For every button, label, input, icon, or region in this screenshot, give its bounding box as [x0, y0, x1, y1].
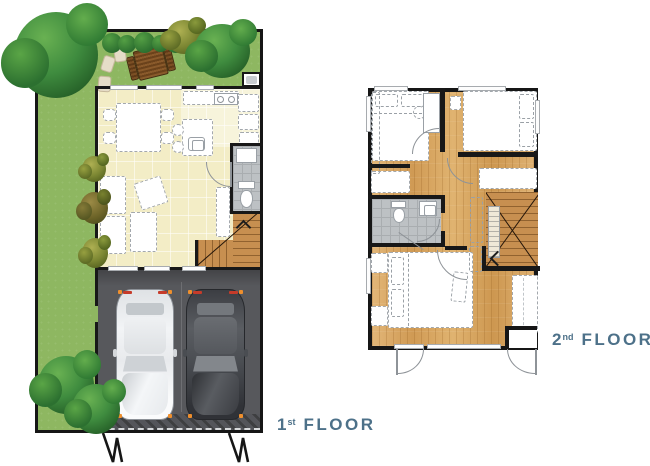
car-roof — [124, 317, 166, 355]
sliding-door — [146, 85, 182, 90]
door-arc — [206, 162, 231, 187]
tail-light — [158, 291, 167, 294]
compressor-icon — [246, 76, 257, 84]
dining-chair — [103, 109, 116, 121]
sink-basin — [192, 140, 204, 151]
dining-chair — [161, 109, 174, 121]
tail-light — [229, 291, 238, 294]
car-dark — [186, 289, 245, 420]
wall — [230, 143, 263, 146]
first-floor-label: 1st FLOOR — [277, 416, 375, 435]
window — [110, 85, 138, 90]
window — [535, 100, 540, 134]
window — [196, 85, 214, 90]
shrub-icon — [80, 192, 108, 224]
tree-icon — [72, 384, 120, 434]
door-leaf — [230, 162, 232, 187]
window — [374, 86, 408, 91]
dresser — [371, 171, 410, 193]
dining-chair — [103, 132, 116, 144]
car-hood — [192, 373, 239, 415]
wall — [368, 195, 445, 199]
car-roof — [194, 317, 237, 355]
toilet-icon — [240, 190, 253, 208]
wall — [441, 231, 445, 247]
wall — [368, 164, 410, 168]
blanket-line — [374, 113, 427, 114]
burner-icon — [217, 96, 224, 103]
marker-light — [239, 290, 243, 294]
side-mirror — [113, 349, 117, 357]
sink-icon — [419, 201, 437, 216]
tail-light — [123, 291, 132, 294]
door-leaf — [535, 349, 537, 375]
rear-window — [126, 303, 163, 315]
porch — [505, 326, 537, 348]
balcony-door-arc — [507, 349, 535, 374]
marker-light — [168, 290, 172, 294]
wall — [441, 195, 445, 213]
window — [427, 344, 501, 349]
pillow — [391, 257, 404, 285]
side-mirror — [244, 349, 248, 357]
stove-icon — [214, 93, 238, 105]
pillow — [391, 289, 404, 317]
wardrobe — [512, 275, 538, 333]
toilet-tank — [238, 181, 255, 189]
parking-divider — [181, 282, 182, 412]
sink-basin — [424, 205, 436, 216]
windshield — [123, 356, 167, 372]
stair-railing — [488, 206, 500, 258]
car-hood — [122, 373, 168, 415]
shrub-icon — [82, 156, 106, 182]
outdoor-unit-niche — [242, 72, 261, 87]
door-arc — [437, 250, 467, 280]
tree-icon — [194, 24, 250, 78]
pillow — [401, 94, 424, 107]
floorplan-image: 1st FLOOR — [0, 0, 650, 466]
dresser — [479, 168, 537, 189]
floor-ordinal: st — [287, 416, 295, 429]
marker-light — [168, 414, 172, 418]
window — [366, 258, 371, 294]
marker-light — [188, 290, 192, 294]
window — [108, 266, 138, 271]
sofa — [130, 212, 157, 252]
window — [144, 266, 170, 271]
garage-side-gap — [95, 306, 98, 322]
blanket-line — [408, 254, 409, 326]
gate-swing-mark — [226, 432, 260, 464]
wall — [440, 88, 445, 152]
side-mirror — [173, 349, 177, 357]
marker-light — [239, 414, 243, 418]
toilet-icon — [393, 208, 405, 223]
door-arc — [417, 219, 440, 242]
kitchen-cabinet — [238, 114, 259, 130]
marker-light — [188, 414, 192, 418]
gate-swing-mark — [100, 432, 134, 464]
floor-number: 2 — [552, 331, 561, 350]
door-arc — [447, 158, 473, 184]
floor-word: FLOOR — [581, 331, 650, 350]
tail-light — [193, 291, 202, 294]
wall — [230, 211, 263, 214]
rear-window — [197, 303, 235, 315]
staircase — [198, 213, 260, 268]
balcony-door-arc — [398, 349, 424, 374]
windshield — [193, 356, 238, 372]
wardrobe-rail — [523, 278, 524, 330]
garage-door-opening — [182, 266, 206, 271]
floor-ordinal: nd — [562, 331, 573, 344]
car-light — [116, 289, 174, 420]
marker-light — [118, 290, 122, 294]
burner-icon — [228, 96, 235, 103]
linen-closet — [470, 197, 483, 243]
window — [366, 96, 371, 132]
window — [458, 86, 506, 91]
toilet-tank — [391, 201, 406, 208]
nightstand — [371, 253, 388, 273]
pillow — [519, 122, 534, 147]
pillow — [519, 94, 534, 119]
wall — [458, 152, 538, 157]
floor-number: 1 — [277, 416, 286, 435]
side-mirror — [183, 349, 187, 357]
desk — [423, 93, 440, 133]
bar-stool — [172, 141, 184, 153]
island-sink-icon — [188, 137, 205, 151]
dining-chair — [161, 132, 174, 144]
floor-word: FLOOR — [303, 416, 375, 435]
refrigerator — [238, 94, 259, 112]
shrub-icon — [82, 238, 108, 268]
stair-treads — [198, 240, 233, 268]
sink-icon — [236, 148, 257, 163]
door-arc — [412, 128, 439, 154]
second-floor-label: 2nd FLOOR — [552, 331, 650, 350]
nightstand — [371, 306, 388, 326]
hall-cabinet — [469, 246, 482, 272]
dining-table — [116, 103, 161, 152]
nightstand — [450, 96, 461, 110]
pillow — [375, 94, 398, 107]
tree-icon — [14, 12, 98, 98]
wall — [484, 266, 540, 271]
wall — [368, 243, 445, 247]
